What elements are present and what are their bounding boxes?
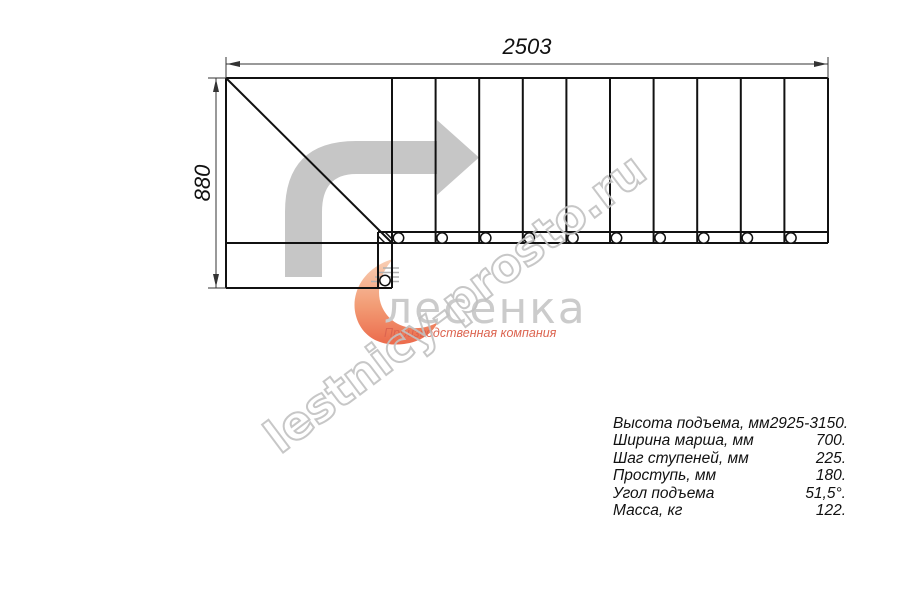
dimension-arrowheads [213, 61, 827, 287]
spec-value: 225. [816, 450, 846, 467]
stringer-bolt-circles [380, 233, 796, 286]
tread-lines [436, 78, 785, 243]
spec-label: Угол подъема [613, 485, 714, 502]
spec-table: Высота подъема, мм 2925-3150. Ширина мар… [613, 415, 846, 519]
spec-label: Ширина марша, мм [613, 432, 754, 449]
spec-value: 180. [816, 467, 846, 484]
spec-label: Шаг ступеней, мм [613, 450, 749, 467]
spec-row-march-width: Ширина марша, мм 700. [613, 432, 846, 449]
height-dimension-label: 880 [190, 132, 212, 234]
spec-row-height: Высота подъема, мм 2925-3150. [613, 415, 846, 432]
spec-value: 700. [816, 432, 846, 449]
spec-row-mass: Масса, кг 122. [613, 502, 846, 519]
spec-value: 51,5°. [805, 485, 846, 502]
spec-value: 122. [816, 502, 846, 519]
spec-label: Проступь, мм [613, 467, 716, 484]
width-dimension-label: 2503 [477, 34, 577, 60]
dimension-lines [208, 57, 828, 288]
spec-row-step-pitch: Шаг ступеней, мм 225. [613, 450, 846, 467]
spec-label: Высота подъема, мм [613, 415, 770, 432]
spec-row-angle: Угол подъема 51,5°. [613, 485, 846, 502]
spec-label: Масса, кг [613, 502, 682, 519]
winder-diagonal-line [226, 78, 392, 243]
stair-plan-outline [226, 78, 828, 288]
spec-value: 2925-3150. [770, 415, 848, 432]
spec-row-tread: Проступь, мм 180. [613, 467, 846, 484]
staircase-drawing-page: лесенка Производственная компания [0, 0, 900, 600]
